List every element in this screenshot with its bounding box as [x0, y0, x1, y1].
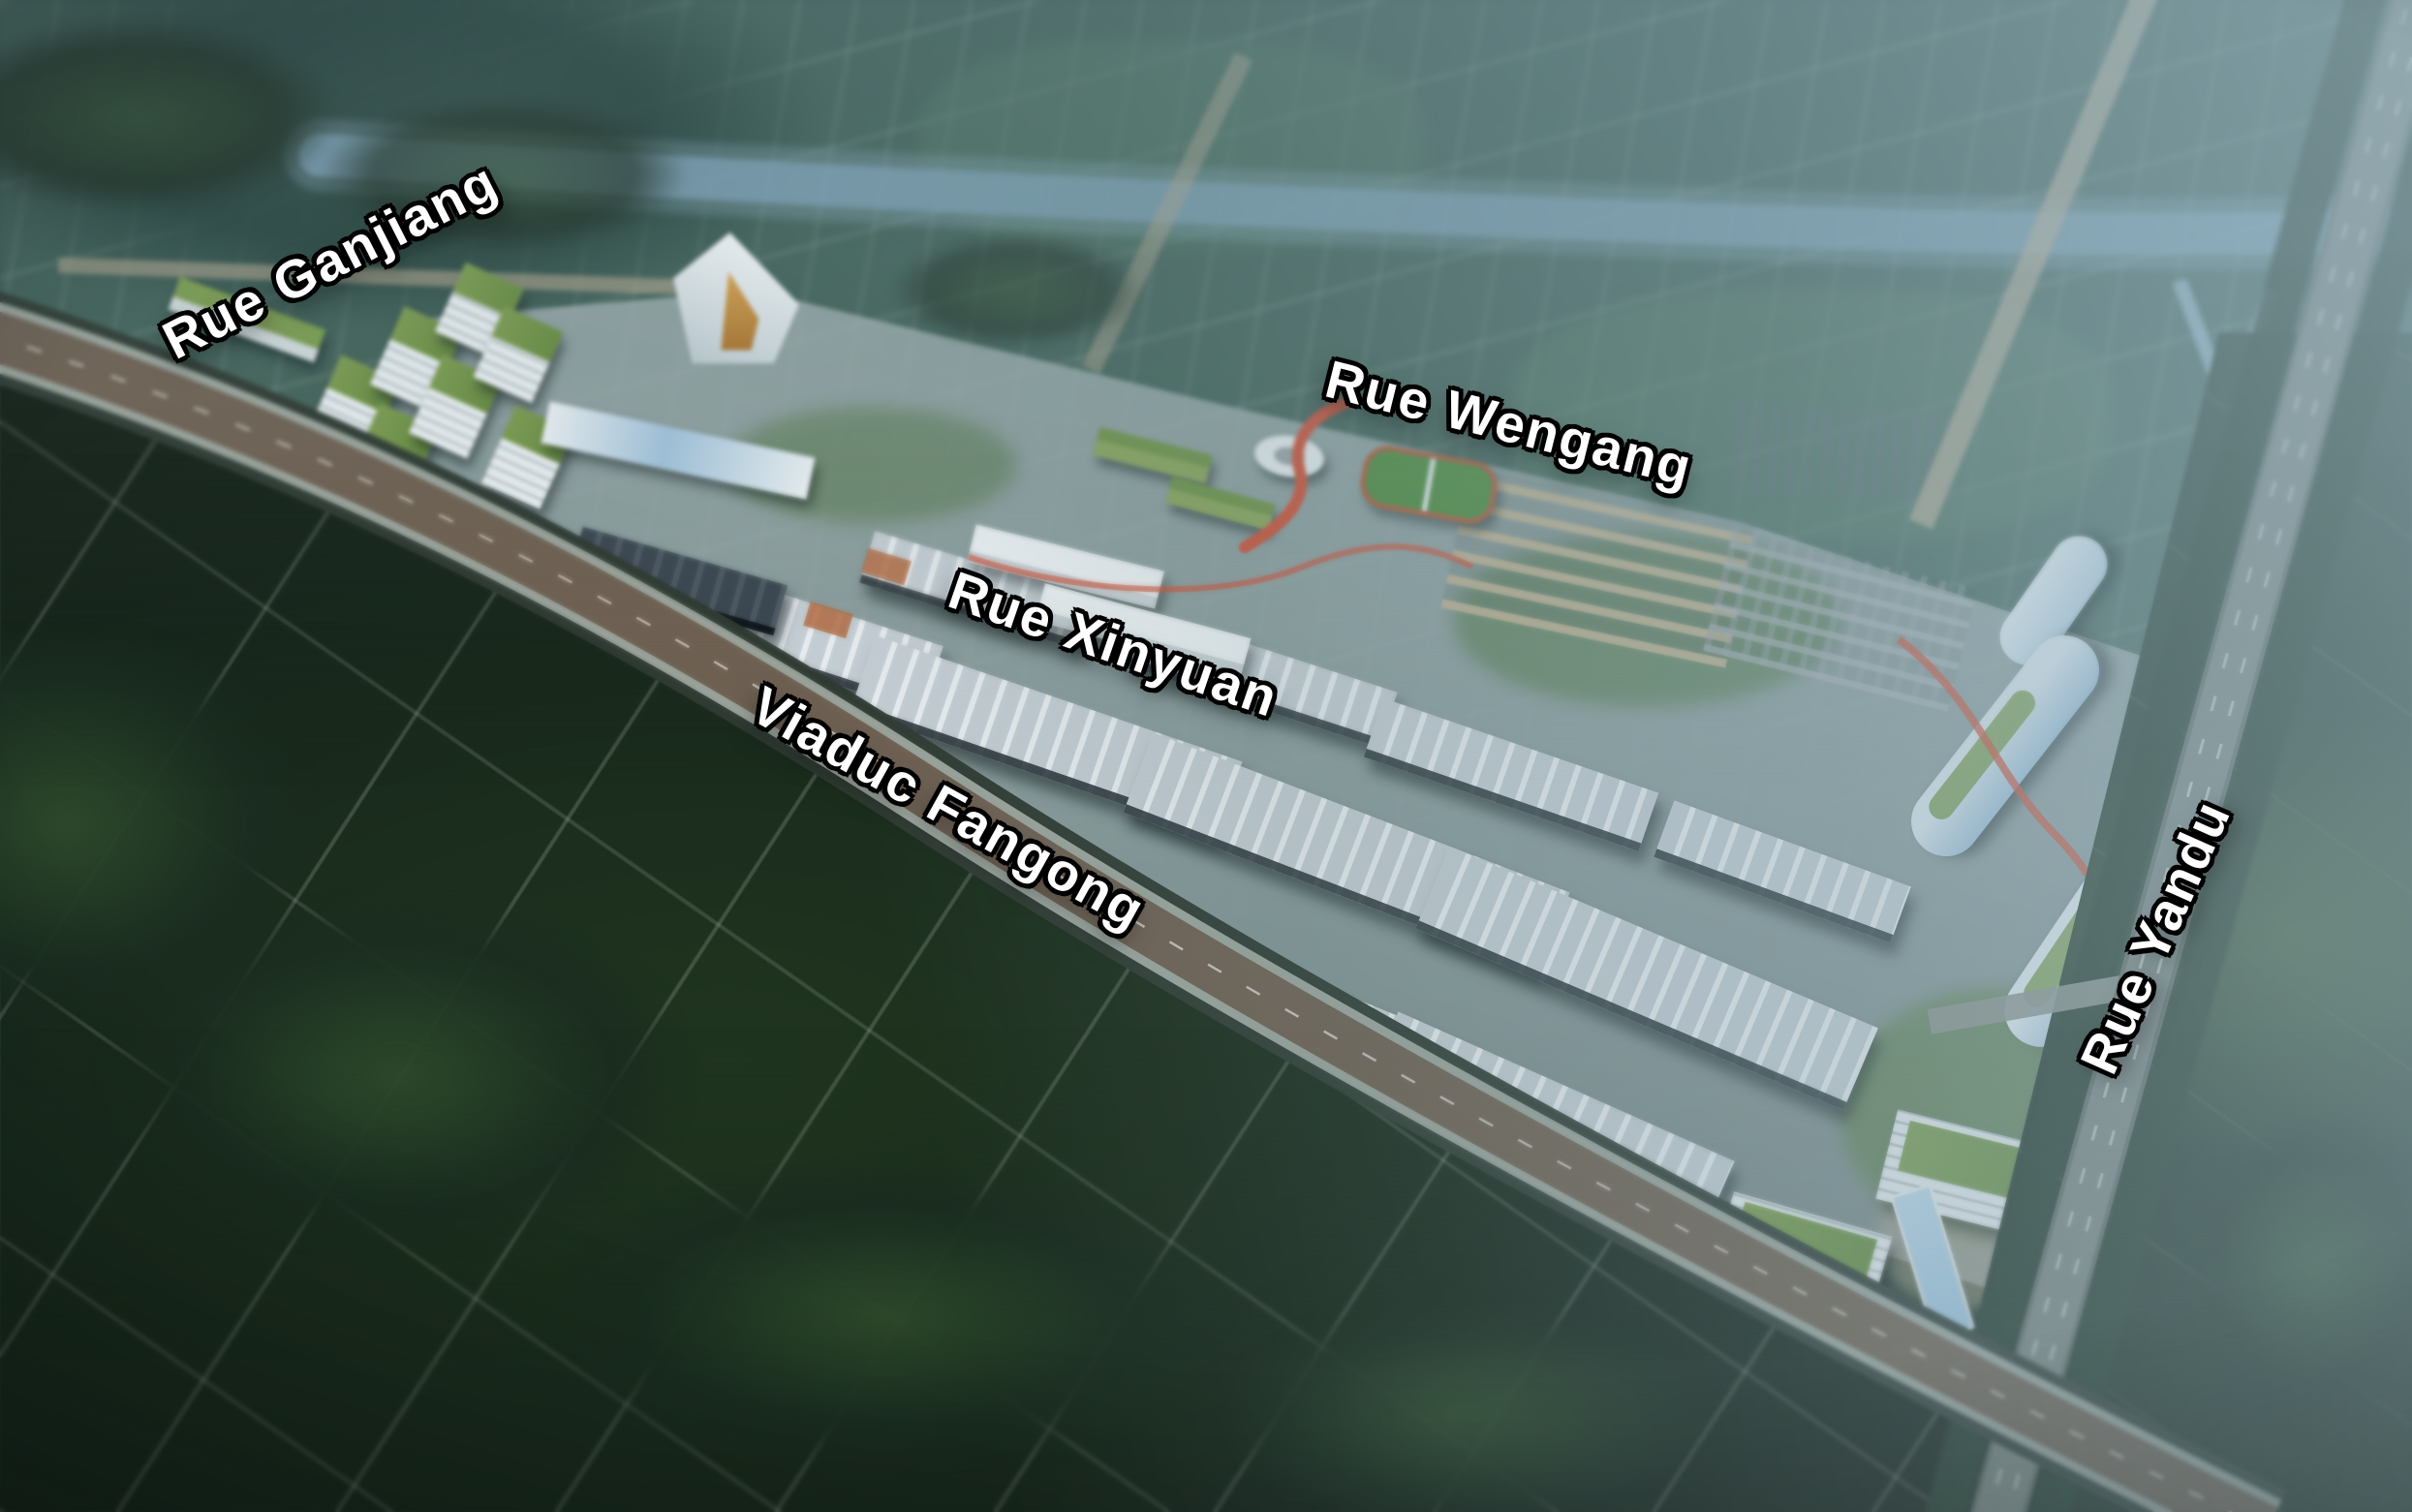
aerial-masterplan-render: Rue Ganjiang Rue Wengang Rue Xinyuan Via…: [0, 0, 2412, 1512]
